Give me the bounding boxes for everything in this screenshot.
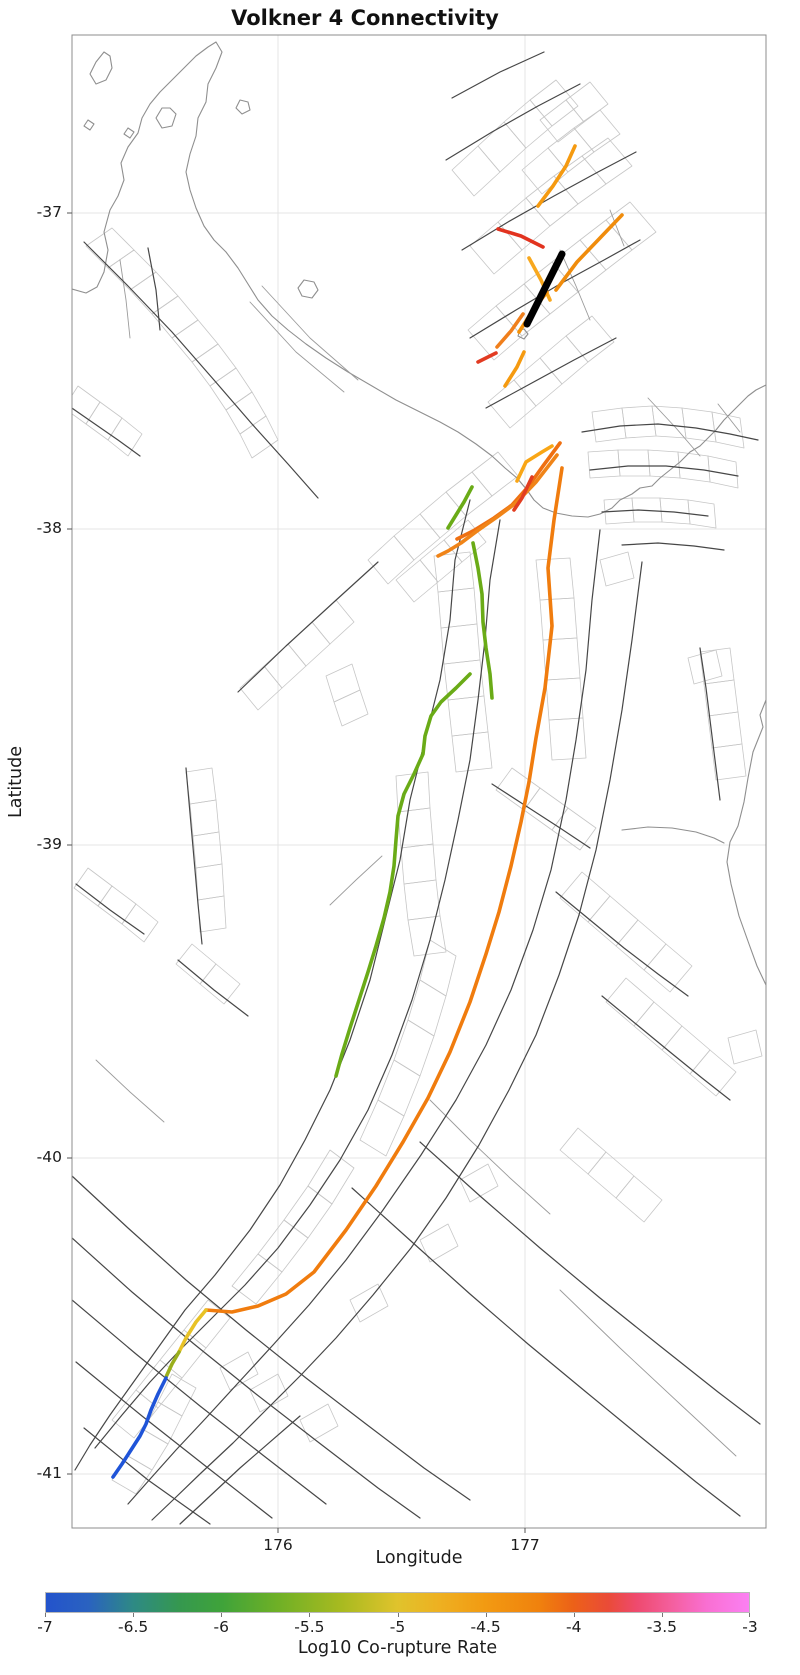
colorbar-tick-mark [133, 1613, 134, 1617]
colorbar-tick-mark [45, 1613, 46, 1617]
colorbar-tick-mark [662, 1613, 663, 1617]
colorbar-tick-label: -4 [566, 1618, 581, 1636]
colorbar-tick-mark [398, 1613, 399, 1617]
fault-traces [66, 52, 760, 1524]
colorbar-tick-label: -7 [37, 1618, 52, 1636]
colorbar-tick-label: -3 [742, 1618, 757, 1636]
colorbar-tick-label: -5 [390, 1618, 405, 1636]
colorbar-tick-mark [221, 1613, 222, 1617]
colorbar-tick-mark [574, 1613, 575, 1617]
figure: Volkner 4 Connectivity Latitude Longitud… [0, 0, 800, 1675]
colorbar-tick-label: -4.5 [471, 1618, 501, 1636]
map-canvas [0, 0, 800, 1675]
y-axis-label: Latitude [6, 722, 26, 842]
colorbar-tick-mark [486, 1613, 487, 1617]
colorbar-tick-label: -5.5 [294, 1618, 324, 1636]
tick-marks [67, 213, 525, 1533]
colorbar-tick-mark [309, 1613, 310, 1617]
colorbar-tick-label: -6.5 [118, 1618, 148, 1636]
y-tick-label: -37 [2, 203, 62, 221]
colorbar-tick-label: -6 [214, 1618, 229, 1636]
y-tick-label: -39 [2, 835, 62, 853]
colorbar-gradient [45, 1592, 750, 1613]
x-axis-label: Longitude [0, 1548, 800, 1568]
map-layers [64, 42, 766, 1524]
y-tick-label: -38 [2, 519, 62, 537]
x-tick-label: 177 [510, 1536, 540, 1554]
colorbar-tick-label: -3.5 [647, 1618, 677, 1636]
plot-border [72, 35, 766, 1528]
colorbar-tick-mark [749, 1613, 750, 1617]
coastline [72, 42, 766, 985]
y-tick-label: -41 [2, 1464, 62, 1482]
gridlines [72, 35, 766, 1528]
x-tick-label: 176 [263, 1536, 293, 1554]
colorbar-label: Log10 Co-rupture Rate [0, 1638, 795, 1658]
y-tick-label: -40 [2, 1148, 62, 1166]
